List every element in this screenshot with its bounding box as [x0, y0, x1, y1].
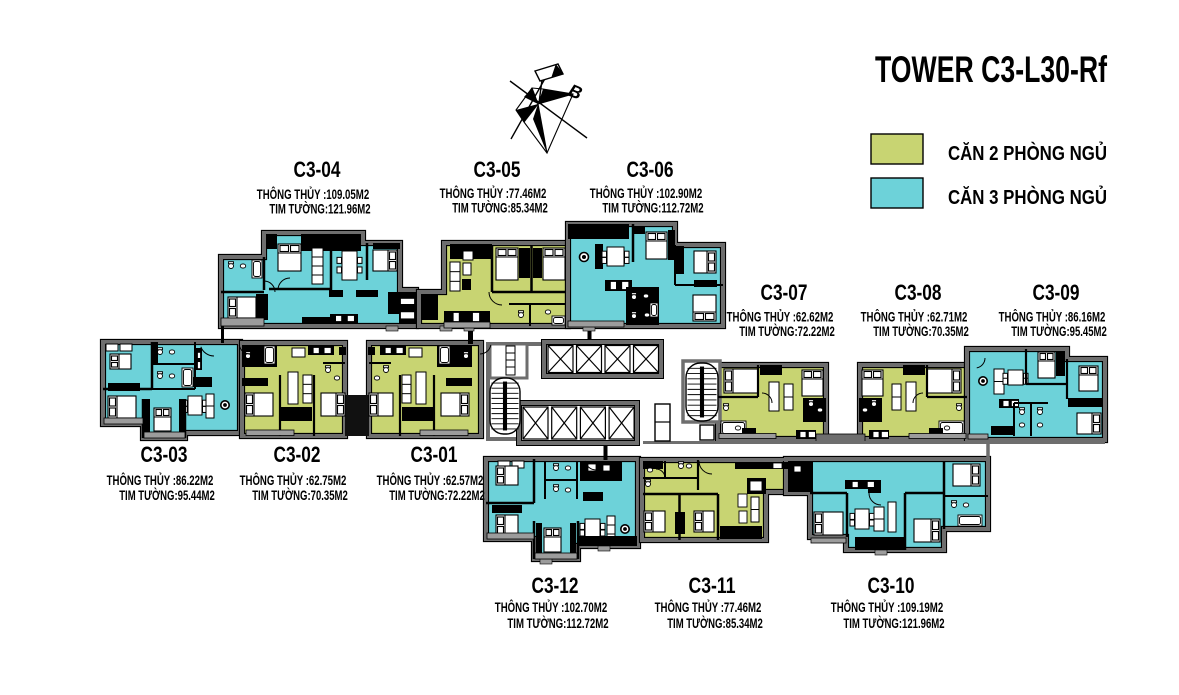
- svg-text:C3-03: C3-03: [141, 442, 188, 467]
- svg-text:TIM TƯỜNG:112.72M2: TIM TƯỜNG:112.72M2: [507, 614, 608, 632]
- svg-text:TIM TƯỜNG:70.35M2: TIM TƯỜNG:70.35M2: [252, 486, 348, 504]
- svg-text:THÔNG THỦY :77.46M2: THÔNG THỦY :77.46M2: [655, 598, 762, 616]
- svg-text:TIM TƯỜNG:85.34M2: TIM TƯỜNG:85.34M2: [667, 614, 763, 632]
- svg-text:TIM TƯỜNG:95.45M2: TIM TƯỜNG:95.45M2: [1011, 322, 1107, 340]
- svg-text:THÔNG THỦY :62.71M2: THÔNG THỦY :62.71M2: [861, 308, 968, 326]
- svg-text:C3-11: C3-11: [689, 573, 736, 598]
- svg-text:THÔNG THỦY :109.19M2: THÔNG THỦY :109.19M2: [831, 598, 943, 616]
- svg-text:TOWER C3-L30-Rf: TOWER C3-L30-Rf: [875, 49, 1107, 90]
- svg-text:C3-07: C3-07: [761, 280, 808, 305]
- svg-text:THÔNG THỦY :77.46M2: THÔNG THỦY :77.46M2: [440, 184, 547, 202]
- svg-text:THÔNG THỦY :109.05M2: THÔNG THỦY :109.05M2: [257, 185, 369, 203]
- svg-text:TIM TƯỜNG:121.96M2: TIM TƯỜNG:121.96M2: [843, 614, 944, 632]
- svg-text:C3-06: C3-06: [627, 157, 674, 182]
- svg-text:CĂN 2 PHÒNG NGỦ: CĂN 2 PHÒNG NGỦ: [948, 141, 1107, 165]
- svg-text:C3-12: C3-12: [532, 573, 579, 598]
- svg-text:C3-09: C3-09: [1033, 280, 1080, 305]
- svg-text:THÔNG THỦY :102.70M2: THÔNG THỦY :102.70M2: [495, 598, 607, 616]
- svg-text:C3-08: C3-08: [895, 280, 942, 305]
- svg-text:TIM TƯỜNG:112.72M2: TIM TƯỜNG:112.72M2: [602, 199, 703, 217]
- svg-text:THÔNG THỦY :102.90M2: THÔNG THỦY :102.90M2: [590, 184, 702, 202]
- svg-text:TIM TƯỜNG:72.22M2: TIM TƯỜNG:72.22M2: [389, 486, 485, 504]
- svg-text:TIM TƯỜNG:95.44M2: TIM TƯỜNG:95.44M2: [119, 486, 215, 504]
- svg-text:THÔNG THỦY :86.22M2: THÔNG THỦY :86.22M2: [107, 471, 214, 489]
- svg-text:TIM TƯỜNG:72.22M2: TIM TƯỜNG:72.22M2: [739, 322, 835, 340]
- svg-text:CĂN 3 PHÒNG NGỦ: CĂN 3 PHÒNG NGỦ: [948, 185, 1107, 209]
- svg-text:THÔNG THỦY :86.16M2: THÔNG THỦY :86.16M2: [999, 308, 1106, 326]
- svg-text:TIM TƯỜNG:70.35M2: TIM TƯỜNG:70.35M2: [873, 322, 969, 340]
- svg-text:THÔNG THỦY :62.57M2: THÔNG THỦY :62.57M2: [377, 471, 484, 489]
- svg-text:C3-02: C3-02: [274, 442, 321, 467]
- svg-text:TIM TƯỜNG:121.96M2: TIM TƯỜNG:121.96M2: [269, 200, 370, 218]
- svg-text:C3-10: C3-10: [868, 573, 915, 598]
- svg-text:THÔNG THỦY :62.75M2: THÔNG THỦY :62.75M2: [240, 471, 347, 489]
- svg-text:C3-01: C3-01: [411, 442, 458, 467]
- svg-text:TIM TƯỜNG:85.34M2: TIM TƯỜNG:85.34M2: [452, 199, 548, 217]
- svg-text:THÔNG THỦY :62.62M2: THÔNG THỦY :62.62M2: [727, 308, 834, 326]
- svg-text:C3-05: C3-05: [474, 157, 521, 182]
- svg-text:C3-04: C3-04: [294, 157, 341, 182]
